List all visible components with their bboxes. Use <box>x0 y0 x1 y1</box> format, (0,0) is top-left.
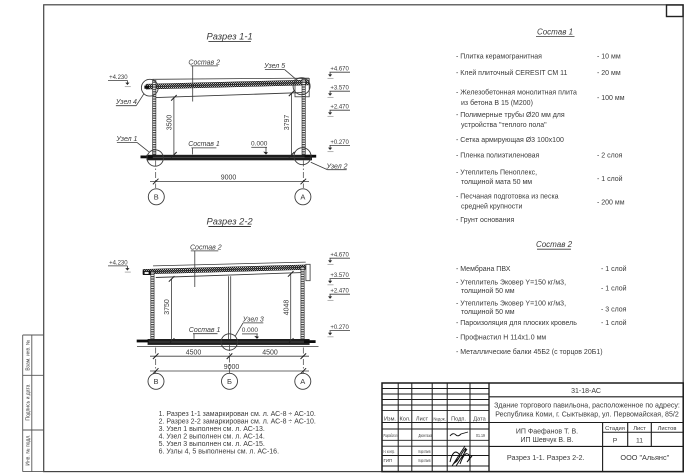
svg-text:- 10 мм: - 10 мм <box>597 54 621 61</box>
svg-text:из бетона В 15 (М200): из бетона В 15 (М200) <box>461 99 533 107</box>
svg-text:Разрез 1-1: Разрез 1-1 <box>207 32 253 42</box>
svg-text:- Металлические балки 45Б2 (с: - Металлические балки 45Б2 (с торцов 20Б… <box>456 348 603 356</box>
svg-text:Узел 2: Узел 2 <box>325 163 347 170</box>
svg-text:- 20 мм: - 20 мм <box>597 70 621 77</box>
svg-text:Республика Коми, г. Сыктывкар,: Республика Коми, г. Сыктывкар, ул. Перво… <box>495 411 679 419</box>
svg-text:- 1 слой: - 1 слой <box>601 265 627 273</box>
svg-text:Состав 2: Состав 2 <box>190 244 222 251</box>
svg-text:- Утеплитель Эковер Y=150 кг/м: - Утеплитель Эковер Y=150 кг/м3, <box>456 280 566 287</box>
svg-text:- Полимерные трубы Ø20 мм для: - Полимерные трубы Ø20 мм для <box>456 111 565 119</box>
svg-text:9000: 9000 <box>221 175 237 182</box>
svg-text:5. Узел 3 выполнен см. л. АС-1: 5. Узел 3 выполнен см. л. АС-15. <box>159 441 265 448</box>
svg-text:- Пароизоляция для плоских кро: - Пароизоляция для плоских кровель <box>456 320 577 327</box>
svg-text:- 2 слоя: - 2 слоя <box>597 152 623 159</box>
svg-text:- 3 слоя: - 3 слоя <box>601 307 627 314</box>
svg-text:Подп.: Подп. <box>451 416 466 422</box>
svg-text:Двоеглазов: Двоеглазов <box>419 433 433 438</box>
svg-text:Н. контр.: Н. контр. <box>384 449 396 454</box>
svg-text:- Утеплитель Пеноплекс,: - Утеплитель Пеноплекс, <box>456 170 537 177</box>
svg-text:- 1 слой: - 1 слой <box>597 175 623 183</box>
svg-text:- Плитка керамогранитная: - Плитка керамогранитная <box>456 54 542 61</box>
svg-text:Здание торгового павильона, ра: Здание торгового павильона, расположенно… <box>494 403 680 410</box>
svg-text:В: В <box>154 193 159 202</box>
svg-text:0.000: 0.000 <box>242 327 259 334</box>
svg-text:- 1 слой: - 1 слой <box>601 285 627 293</box>
svg-text:- Профнастил Н 114х1.0 мм: - Профнастил Н 114х1.0 мм <box>456 335 546 342</box>
svg-text:3750: 3750 <box>164 299 171 315</box>
svg-text:Состав 1: Состав 1 <box>188 141 220 148</box>
svg-text:4500: 4500 <box>186 349 202 356</box>
svg-text:Изм.: Изм. <box>384 416 396 422</box>
svg-text:2. Разрез 2-2 замаркирован см.: 2. Разрез 2-2 замаркирован см. л. АС-8 ÷… <box>159 419 316 426</box>
svg-text:ИП Фаефанов Т. В.: ИП Фаефанов Т. В. <box>516 429 578 436</box>
svg-text:ГИП: ГИП <box>384 458 393 463</box>
svg-text:- 1 слой: - 1 слой <box>601 319 627 327</box>
svg-text:толщиной мата 50 мм: толщиной мата 50 мм <box>461 178 532 186</box>
svg-text:6. Узлы 4, 5 выполнены см. л.: 6. Узлы 4, 5 выполнены см. л. АС-16. <box>159 449 279 456</box>
svg-text:В: В <box>153 377 158 386</box>
svg-text:Лист: Лист <box>416 416 429 422</box>
svg-text:3. Узел 1 выполнен см. л. АС-1: 3. Узел 1 выполнен см. л. АС-13. <box>159 426 265 433</box>
svg-text:Б: Б <box>227 377 232 386</box>
svg-text:3500: 3500 <box>167 115 174 131</box>
svg-text:средней крупности: средней крупности <box>461 202 522 210</box>
svg-text:11: 11 <box>636 438 643 445</box>
svg-text:0.000: 0.000 <box>251 141 268 148</box>
svg-text:Разрез 1-1. Разрез 2-2.: Разрез 1-1. Разрез 2-2. <box>507 453 585 462</box>
svg-text:ИП Шевчук В. В.: ИП Шевчук В. В. <box>520 437 573 444</box>
svg-text:Коротаев: Коротаев <box>419 449 431 454</box>
svg-text:- 200 мм: - 200 мм <box>597 200 625 207</box>
svg-text:- Песчаная подготовка из песка: - Песчаная подготовка из песка <box>456 193 559 200</box>
svg-text:31-18-АС: 31-18-АС <box>571 388 601 395</box>
svg-text:4048: 4048 <box>283 300 290 316</box>
svg-text:- Мембрана ПВХ: - Мембрана ПВХ <box>456 265 511 273</box>
svg-text:- Утеплитель Эковер Y=100 кг/м: - Утеплитель Эковер Y=100 кг/м3, <box>456 301 566 308</box>
svg-text:Узел 4: Узел 4 <box>115 99 137 106</box>
svg-text:Стадия: Стадия <box>605 426 625 432</box>
svg-text:А: А <box>300 193 305 202</box>
svg-text:- Железобетонная монолитная п: - Железобетонная монолитная плита <box>456 88 577 96</box>
svg-text:Подпись и дата: Подпись и дата <box>26 384 32 420</box>
svg-text:1. Разрез 1-1 замаркирован см.: 1. Разрез 1-1 замаркирован см. л. АС-8 ÷… <box>159 411 316 418</box>
svg-text:Коротаев: Коротаев <box>419 458 431 463</box>
svg-text:Инв. № подл.: Инв. № подл. <box>26 434 32 465</box>
svg-text:Разработал: Разработал <box>384 433 398 438</box>
svg-text:- Сетка армирующая Ø3 100х100: - Сетка армирующая Ø3 100х100 <box>456 137 564 144</box>
svg-text:Узел 1: Узел 1 <box>115 136 137 143</box>
svg-text:Р: Р <box>613 438 618 445</box>
svg-text:Узел 5: Узел 5 <box>263 63 285 70</box>
svg-text:Состав 2: Состав 2 <box>536 240 573 249</box>
svg-text:Лист: Лист <box>633 426 646 432</box>
svg-text:Состав 1: Состав 1 <box>537 27 573 36</box>
svg-text:4. Узел 2 выполнен см. л. АС-1: 4. Узел 2 выполнен см. л. АС-14. <box>159 434 265 441</box>
svg-text:- 100 мм: - 100 мм <box>597 95 625 102</box>
svg-text:Дата: Дата <box>473 416 486 422</box>
svg-text:устройства "теплого пола": устройства "теплого пола" <box>461 121 547 129</box>
svg-text:Кол.: Кол. <box>399 416 411 422</box>
svg-text:- Клей плиточный CERESIT СМ 11: - Клей плиточный CERESIT СМ 11 <box>456 69 568 77</box>
svg-text:01.19: 01.19 <box>476 433 485 438</box>
svg-text:Листов: Листов <box>658 426 677 432</box>
svg-text:ООО "Альянс": ООО "Альянс" <box>620 453 669 462</box>
svg-text:Состав 1: Состав 1 <box>189 327 221 334</box>
svg-text:- Пленка полиэтиленовая: - Пленка полиэтиленовая <box>456 152 540 159</box>
svg-text:9000: 9000 <box>224 364 240 371</box>
svg-text:толщиной 50 мм: толщиной 50 мм <box>461 287 515 295</box>
svg-text:4500: 4500 <box>262 349 278 356</box>
svg-text:Узел 3: Узел 3 <box>242 317 264 324</box>
svg-text:- Грунт основания: - Грунт основания <box>456 217 514 224</box>
svg-text:Взам. инв. №: Взам. инв. № <box>26 340 32 371</box>
svg-text:А: А <box>300 377 305 386</box>
svg-text:3797: 3797 <box>284 115 291 131</box>
svg-text:толщиной 50 мм: толщиной 50 мм <box>461 308 515 316</box>
svg-text:№док.: №док. <box>433 417 446 422</box>
svg-text:Разрез 2-2: Разрез 2-2 <box>207 216 254 226</box>
